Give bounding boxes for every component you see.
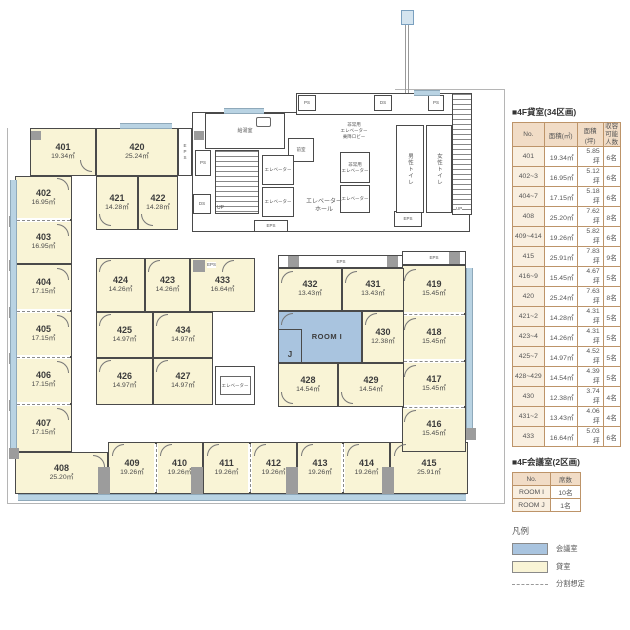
room-number: 418 — [426, 328, 441, 338]
womens-toilet-label: 女性トイレ — [435, 153, 443, 186]
eps-shaft-core-2: EPS — [394, 211, 422, 227]
room-area: 14.54㎡ — [359, 386, 383, 394]
pillar — [194, 131, 204, 140]
table-row: 416~915.45㎡4.67坪5名 — [513, 267, 621, 287]
room-area: 13.43㎡ — [298, 290, 322, 298]
cell-tsubo: 4.31坪 — [577, 327, 603, 347]
womens-toilet: 女性トイレ — [426, 125, 452, 213]
mens-toilet: 男性トイレ — [396, 125, 424, 213]
cell-cap: 6名 — [603, 167, 620, 187]
division-line-icon — [512, 584, 548, 585]
window-strip-top — [414, 90, 440, 96]
division-line — [404, 361, 464, 362]
emergency-elevator: 非常用 エレベーター — [340, 152, 370, 183]
pillar — [191, 467, 203, 494]
room-number: 415 — [421, 459, 436, 469]
cell-no: 409~414 — [513, 227, 545, 247]
cell-no: 404~7 — [513, 187, 545, 207]
ps-label: PS — [304, 100, 310, 106]
table-row: ROOM I10名 — [513, 486, 581, 499]
eps-label: EPS — [183, 143, 188, 161]
col-no: No. — [513, 123, 545, 147]
cell-cap: 8名 — [603, 207, 620, 227]
cell-cap: 4名 — [603, 387, 620, 407]
room-number: 410 — [172, 459, 187, 469]
cell-m2: 25.91㎡ — [544, 247, 577, 267]
cell-no: 428~429 — [513, 367, 545, 387]
cell-tsubo: 7.62坪 — [577, 207, 603, 227]
eps-box-433 — [193, 260, 205, 272]
cell-m2: 17.15㎡ — [544, 187, 577, 207]
room-area: 14.26㎡ — [156, 286, 180, 294]
division-line — [17, 311, 70, 312]
cell-m2: 16.64㎡ — [544, 427, 577, 447]
room-number: 414 — [359, 459, 374, 469]
roof-shaft — [401, 10, 414, 25]
cell-tsubo: 5.85坪 — [577, 147, 603, 167]
cell-no: ROOM J — [513, 499, 551, 512]
table-row: 40825.20㎡7.62坪8名 — [513, 207, 621, 227]
cell-m2: 19.26㎡ — [544, 227, 577, 247]
legend-item-division: 分割想定 — [512, 579, 628, 589]
room-area: 17.15㎡ — [32, 335, 56, 343]
meeting-table: No. 席数 ROOM I10名 ROOM J1名 — [512, 472, 581, 512]
cell-tsubo: 5.03坪 — [577, 427, 603, 447]
room-area: 17.15㎡ — [32, 288, 56, 296]
emergency-elevator-label: 非常用 エレベーター — [342, 162, 369, 174]
room-number: 408 — [54, 464, 69, 474]
room-number: 428 — [300, 376, 315, 386]
floorplan-page: 給湯室 前室 UP エレベーター エレベーター 非常用 エレベーター 乗降ロビー… — [0, 0, 630, 630]
room-area: 19.26㎡ — [355, 469, 379, 477]
table-row: 40119.34㎡5.85坪6名 — [513, 147, 621, 167]
pillar — [286, 467, 298, 494]
room-area: 17.15㎡ — [32, 381, 56, 389]
cell-tsubo: 4.06坪 — [577, 407, 603, 427]
cell-no: ROOM I — [513, 486, 551, 499]
elevator-hall-label: エレベーター ホール — [298, 199, 350, 215]
site-outline — [8, 503, 505, 504]
room-area: 13.43㎡ — [361, 290, 385, 298]
room-area: 14.28㎡ — [105, 204, 129, 212]
cell-no: 423~4 — [513, 327, 545, 347]
room-number: 404 — [36, 278, 51, 288]
cell-cap: 5名 — [603, 327, 620, 347]
legend: 凡例 会議室 貸室 分割想定 — [512, 525, 628, 589]
division-line — [250, 444, 251, 492]
table-row: 431~213.43㎡4.06坪4名 — [513, 407, 621, 427]
ps-shaft: PS — [195, 150, 211, 176]
ps-shaft-top-2: PS — [428, 95, 444, 111]
col-seats: 席数 — [551, 473, 581, 486]
room-number: 430 — [375, 328, 390, 338]
pillar — [382, 467, 394, 494]
cell-cap: 8名 — [603, 287, 620, 307]
cell-no: 402~3 — [513, 167, 545, 187]
room-number: 412 — [266, 459, 281, 469]
pillar — [466, 428, 476, 440]
room-number: 434 — [175, 326, 190, 336]
sink-icon — [256, 117, 271, 127]
ds-label: DS — [199, 201, 205, 207]
legend-label: 会議室 — [556, 544, 578, 554]
room-number: 403 — [36, 233, 51, 243]
cell-tsubo: 7.83坪 — [577, 247, 603, 267]
table-row: ROOM J1名 — [513, 499, 581, 512]
cell-cap: 5名 — [603, 267, 620, 287]
room-number: 409 — [124, 459, 139, 469]
table-row: 41525.91㎡7.83坪9名 — [513, 247, 621, 267]
cell-m2: 14.97㎡ — [544, 347, 577, 367]
cell-tsubo: 5.12坪 — [577, 167, 603, 187]
elevator-2: エレベーター — [262, 187, 294, 217]
side-panel: ■4F貸室(34区画) No. 面積(㎡) 面積(坪) 収容可能 人数 4011… — [512, 106, 628, 595]
stairs-up-label: UP — [456, 206, 462, 212]
pillar — [288, 256, 299, 267]
room-number: 423 — [160, 276, 175, 286]
room-area: 19.26㎡ — [168, 469, 192, 477]
cell-no: 408 — [513, 207, 545, 227]
room-area: 14.97㎡ — [113, 382, 137, 390]
room-area: 19.26㎡ — [120, 469, 144, 477]
room-area: 25.91㎡ — [417, 469, 441, 477]
elevator-label: エレベーター — [220, 376, 251, 396]
eps-label: EPS — [336, 259, 345, 265]
room-area: 14.97㎡ — [171, 382, 195, 390]
cell-m2: 14.28㎡ — [544, 307, 577, 327]
cell-m2: 25.20㎡ — [544, 207, 577, 227]
cell-no: 421~2 — [513, 307, 545, 327]
division-line — [343, 444, 344, 492]
cell-cap: 4名 — [603, 407, 620, 427]
table-row: 43012.38㎡3.74坪4名 — [513, 387, 621, 407]
room-number: 429 — [363, 376, 378, 386]
meeting-swatch-icon — [512, 543, 548, 555]
room-number: 433 — [215, 276, 230, 286]
room-area: 25.24㎡ — [125, 153, 149, 161]
room-number: 402 — [36, 189, 51, 199]
room-number: 425 — [117, 326, 132, 336]
cell-m2: 14.26㎡ — [544, 327, 577, 347]
room-area: 19.26㎡ — [308, 469, 332, 477]
col-area-tsubo: 面積(坪) — [577, 123, 603, 147]
ps-label: PS — [200, 160, 206, 166]
cell-no: 425~7 — [513, 347, 545, 367]
pillar — [387, 256, 398, 267]
pillar — [449, 252, 460, 264]
division-line — [404, 314, 464, 315]
room-number: 421 — [109, 194, 124, 204]
table-row: 428~42914.54㎡4.39坪5名 — [513, 367, 621, 387]
ds-shaft-top: DS — [374, 95, 392, 111]
eps-label: EPS — [266, 223, 275, 229]
cell-tsubo: 4.52坪 — [577, 347, 603, 367]
cell-cap: 5名 — [603, 367, 620, 387]
rental-table: No. 面積(㎡) 面積(坪) 収容可能 人数 40119.34㎡5.85坪6名… — [512, 122, 621, 447]
col-no: No. — [513, 473, 551, 486]
legend-title: 凡例 — [512, 525, 628, 537]
room-area: 16.95㎡ — [32, 243, 56, 251]
table-row: 43316.64㎡5.03坪6名 — [513, 427, 621, 447]
table-row: 42025.24㎡7.63坪8名 — [513, 287, 621, 307]
kitchenette-room: 給湯室 — [205, 113, 285, 149]
mens-toilet-label: 男性トイレ — [406, 153, 414, 186]
table-row: 409~41419.26㎡5.82坪6名 — [513, 227, 621, 247]
cell-m2: 12.38㎡ — [544, 387, 577, 407]
cell-seats: 10名 — [551, 486, 581, 499]
pillar — [98, 467, 110, 494]
cell-cap: 9名 — [603, 247, 620, 267]
cell-seats: 1名 — [551, 499, 581, 512]
pillar — [9, 448, 19, 459]
table-row: 404~717.15㎡5.18坪6名 — [513, 187, 621, 207]
cell-cap: 5名 — [603, 307, 620, 327]
eps-label: EPS — [429, 255, 438, 261]
cell-tsubo: 5.18坪 — [577, 187, 603, 207]
table-row: 402~316.95㎡5.12坪6名 — [513, 167, 621, 187]
elevator-1: エレベーター — [262, 155, 294, 185]
room-number: 406 — [36, 371, 51, 381]
service-elevator: エレベーター — [215, 366, 255, 405]
room-number: 420 — [129, 143, 144, 153]
cell-no: 415 — [513, 247, 545, 267]
room-area: 15.45㎡ — [422, 290, 446, 298]
room-number: 432 — [302, 280, 317, 290]
division-line — [17, 357, 70, 358]
room-number: 413 — [312, 459, 327, 469]
room-area: 14.97㎡ — [171, 336, 195, 344]
cell-tsubo: 4.67坪 — [577, 267, 603, 287]
room-area: 25.20㎡ — [50, 474, 74, 482]
elevator-label: エレベーター — [265, 167, 292, 173]
division-line — [17, 404, 70, 405]
legend-label: 貸室 — [556, 562, 570, 572]
cell-tsubo: 5.82坪 — [577, 227, 603, 247]
room-area: 14.26㎡ — [109, 286, 133, 294]
table-row: 421~214.28㎡4.31坪5名 — [513, 307, 621, 327]
kitchenette-label: 給湯室 — [237, 128, 252, 134]
division-line — [404, 407, 464, 408]
room-number: ROOM I — [298, 333, 343, 341]
site-outline — [395, 89, 505, 90]
division-line — [17, 220, 70, 221]
site-outline — [504, 90, 505, 504]
window-strip-left — [10, 180, 17, 448]
room-area: 19.26㎡ — [215, 469, 239, 477]
room-number: 411 — [219, 459, 234, 469]
col-capacity: 収容可能 人数 — [603, 123, 620, 147]
room-number: 426 — [117, 372, 132, 382]
shaft-line — [405, 25, 409, 93]
room-area: 12.38㎡ — [371, 338, 395, 346]
cell-cap: 6名 — [603, 427, 620, 447]
rental-swatch-icon — [512, 561, 548, 573]
ps-shaft-top: PS — [298, 95, 316, 111]
room-number: 416 — [426, 420, 441, 430]
window-strip-right — [466, 268, 473, 428]
ps-label: PS — [433, 100, 439, 106]
meeting-room-j: J — [278, 329, 302, 363]
legend-item-meeting: 会議室 — [512, 543, 628, 555]
meeting-table-title: ■4F会議室(2区画) — [512, 456, 628, 468]
room-number: 422 — [150, 194, 165, 204]
elevator-label: エレベーター — [265, 199, 292, 205]
cell-cap: 6名 — [603, 227, 620, 247]
room-number: J — [288, 351, 292, 360]
ds-shaft: DS — [193, 194, 211, 214]
site-outline — [7, 128, 8, 504]
cell-cap: 5名 — [603, 347, 620, 367]
eps-label: EPS — [207, 262, 216, 268]
cell-no: 433 — [513, 427, 545, 447]
cell-cap: 6名 — [603, 147, 620, 167]
table-row: 425~714.97㎡4.52坪5名 — [513, 347, 621, 367]
room-area: 16.95㎡ — [32, 199, 56, 207]
pillar — [31, 131, 41, 140]
table-header-row: No. 面積(㎡) 面積(坪) 収容可能 人数 — [513, 123, 621, 147]
room-area: 16.64㎡ — [211, 286, 235, 294]
room-area: 19.26㎡ — [262, 469, 286, 477]
room-420: 420 25.24㎡ — [96, 128, 178, 176]
emergency-elevator-lobby-label: 非常用 エレベーター 乗降ロビー — [332, 122, 376, 140]
room-area: 19.34㎡ — [51, 153, 75, 161]
cell-tsubo: 4.31坪 — [577, 307, 603, 327]
room-number: 419 — [426, 280, 441, 290]
eps-label: EPS — [403, 216, 412, 222]
cell-tsubo: 7.63坪 — [577, 287, 603, 307]
col-area-m2: 面積(㎡) — [544, 123, 577, 147]
room-number: 427 — [175, 372, 190, 382]
room-area: 14.28㎡ — [146, 204, 170, 212]
room-area: 15.45㎡ — [422, 385, 446, 393]
room-area: 14.97㎡ — [113, 336, 137, 344]
legend-label: 分割想定 — [556, 579, 585, 589]
cell-m2: 16.95㎡ — [544, 167, 577, 187]
table-row: 423~414.26㎡4.31坪5名 — [513, 327, 621, 347]
room-area: 14.54㎡ — [296, 386, 320, 394]
table-header-row: No. 席数 — [513, 473, 581, 486]
window-strip-bottom — [18, 494, 466, 501]
anteroom-label: 前室 — [297, 147, 306, 153]
room-number: 407 — [36, 419, 51, 429]
room-number: 417 — [426, 375, 441, 385]
cell-cap: 6名 — [603, 187, 620, 207]
cell-no: 401 — [513, 147, 545, 167]
cell-no: 431~2 — [513, 407, 545, 427]
room-area: 17.15㎡ — [32, 429, 56, 437]
stairs-up-label: UP — [217, 205, 224, 211]
division-line — [156, 444, 157, 492]
cell-m2: 15.45㎡ — [544, 267, 577, 287]
cell-m2: 25.24㎡ — [544, 287, 577, 307]
room-area: 15.45㎡ — [422, 338, 446, 346]
room-number: 401 — [55, 143, 70, 153]
cell-m2: 19.34㎡ — [544, 147, 577, 167]
right-stairs — [452, 93, 472, 215]
eps-shaft-420: EPS — [178, 128, 192, 176]
room-area: 15.45㎡ — [422, 430, 446, 438]
cell-no: 430 — [513, 387, 545, 407]
window-strip-top — [120, 123, 172, 129]
cell-tsubo: 3.74坪 — [577, 387, 603, 407]
rental-table-title: ■4F貸室(34区画) — [512, 106, 628, 118]
room-number: 405 — [36, 325, 51, 335]
eps-shaft-core: EPS — [254, 220, 288, 232]
room-number: 424 — [113, 276, 128, 286]
cell-m2: 14.54㎡ — [544, 367, 577, 387]
cell-m2: 13.43㎡ — [544, 407, 577, 427]
cell-no: 420 — [513, 287, 545, 307]
room-number: 431 — [365, 280, 380, 290]
ds-label: DS — [380, 100, 386, 106]
legend-item-rental: 貸室 — [512, 561, 628, 573]
cell-tsubo: 4.39坪 — [577, 367, 603, 387]
cell-no: 416~9 — [513, 267, 545, 287]
window-strip-top — [224, 108, 264, 114]
